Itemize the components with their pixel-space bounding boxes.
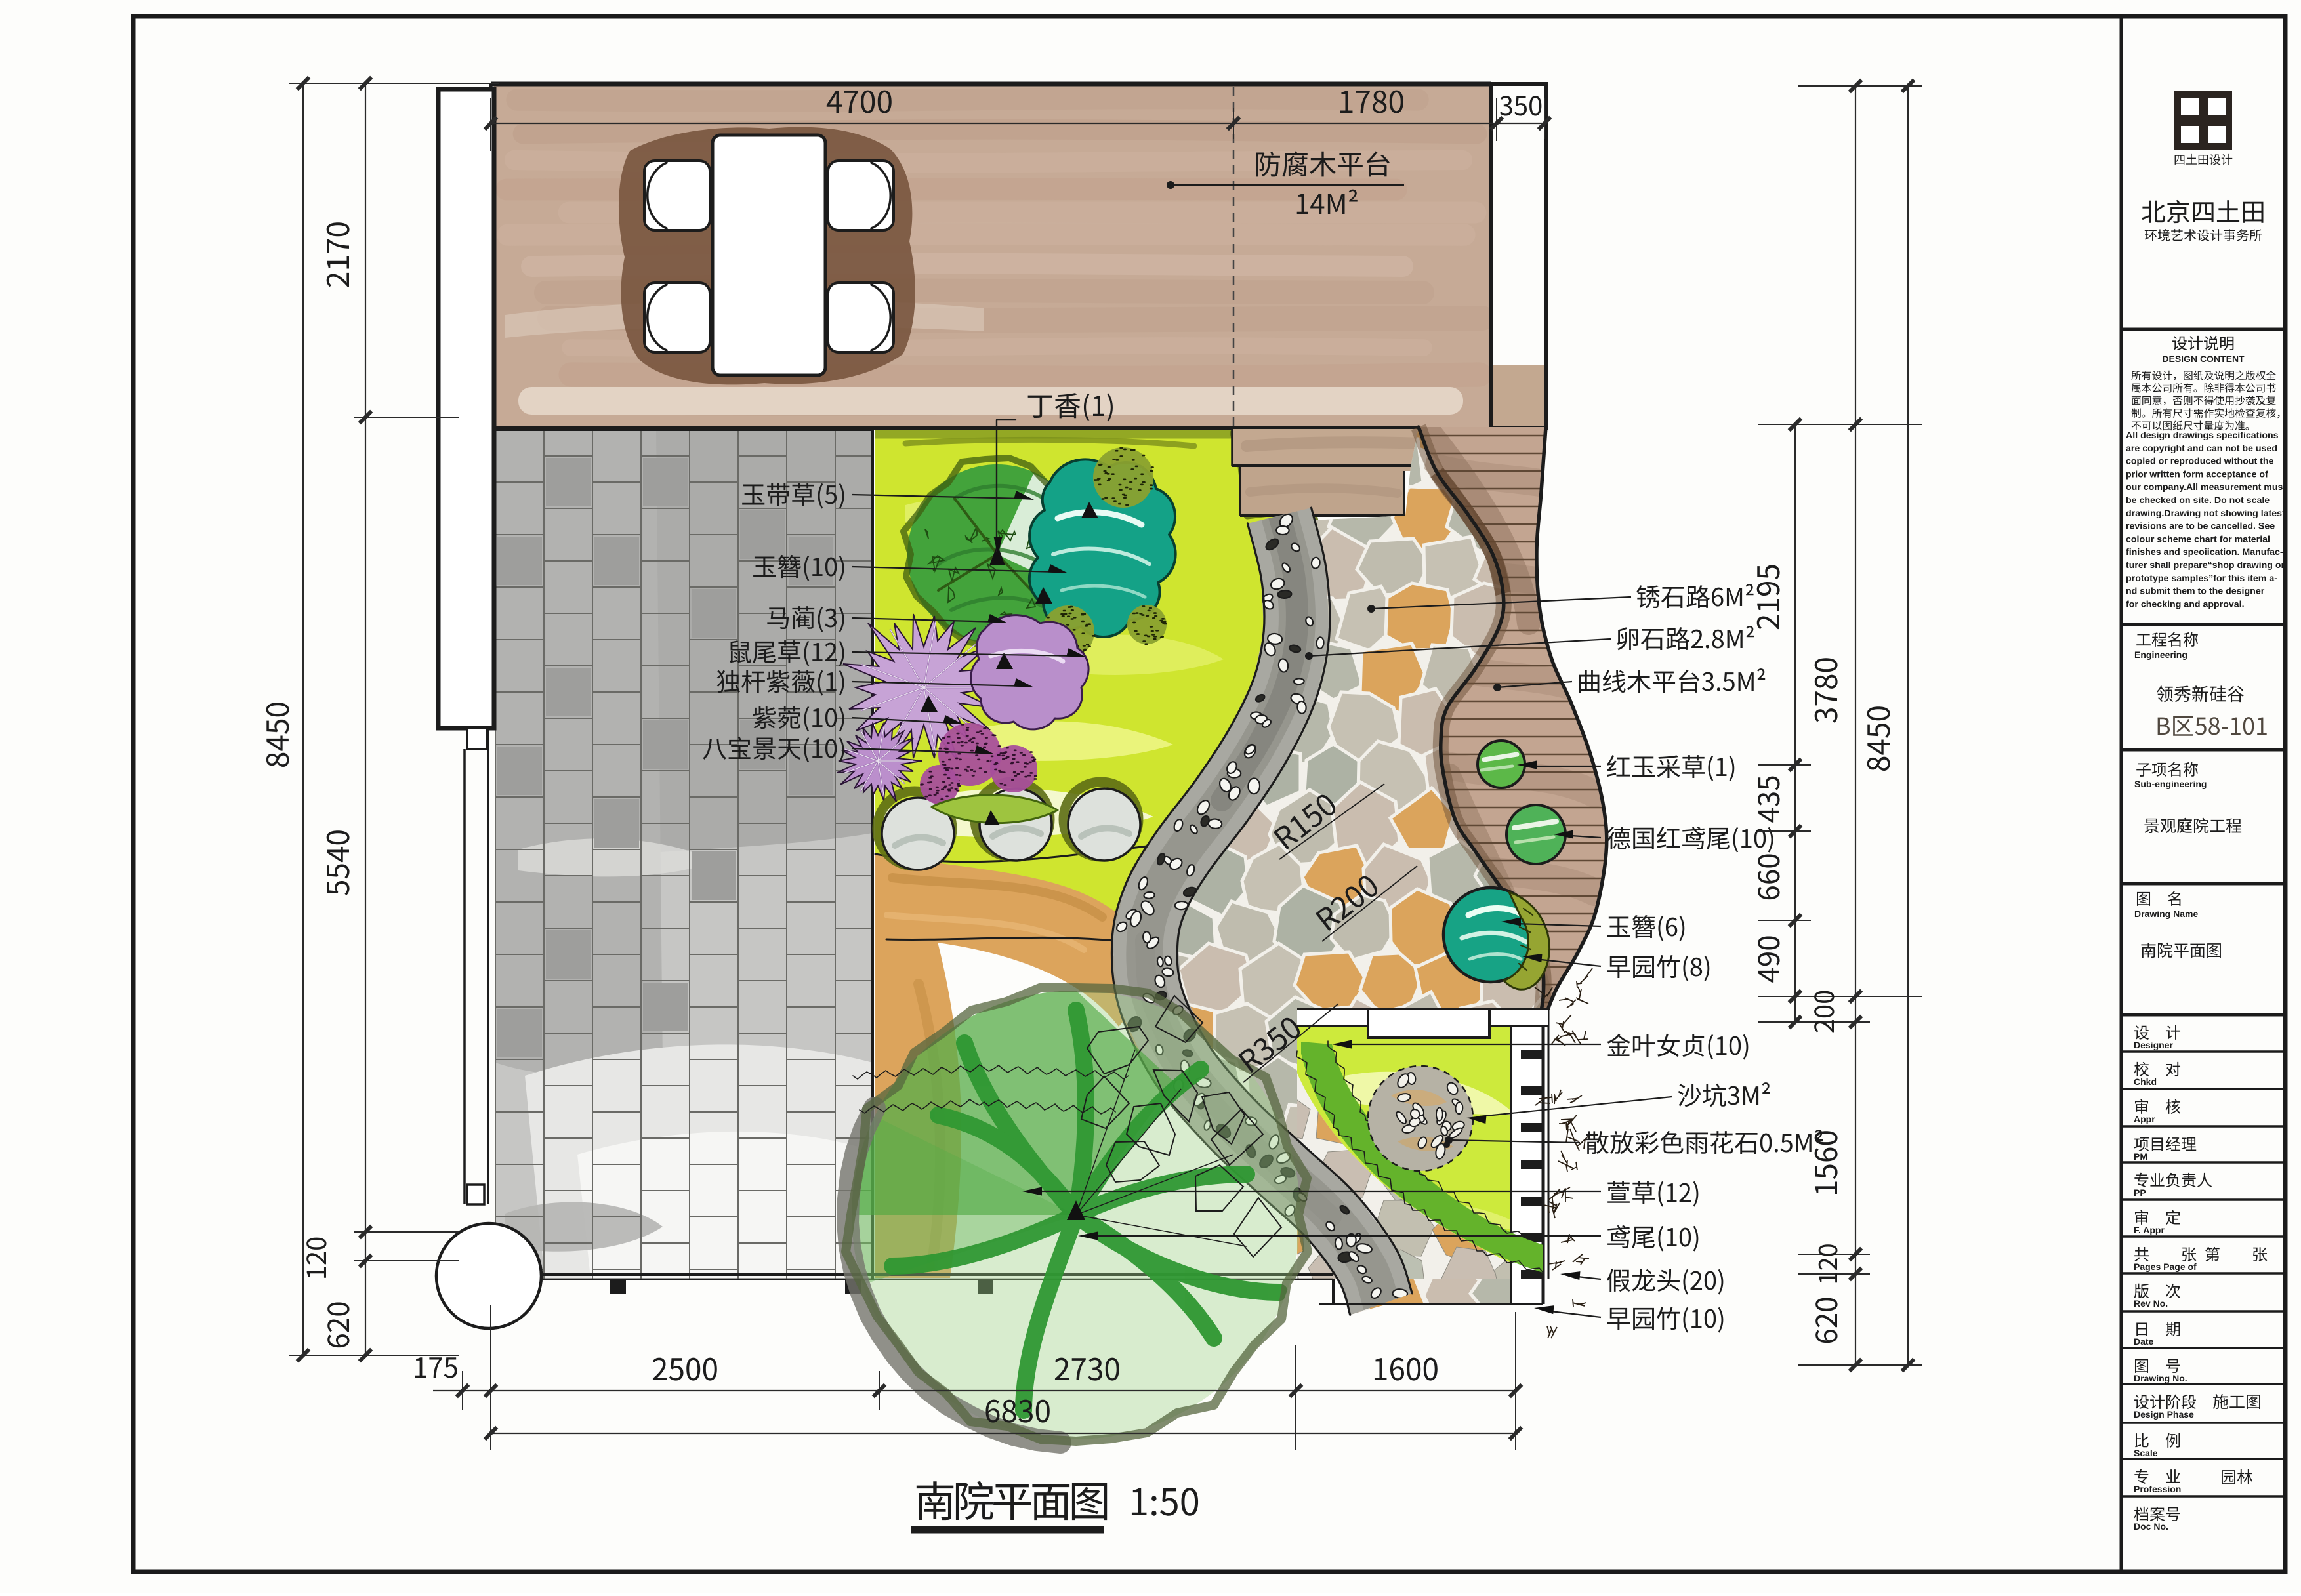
- svg-text:Chkd: Chkd: [2134, 1076, 2157, 1087]
- svg-text:finishes and speoiication. Man: finishes and speoiication. Manufac-: [2126, 547, 2283, 558]
- svg-text:are copyright and can not be u: are copyright and can not be used: [2126, 443, 2277, 454]
- svg-text:Rev No.: Rev No.: [2134, 1298, 2168, 1309]
- svg-text:Scale: Scale: [2134, 1448, 2158, 1458]
- svg-text:Sub-engineering: Sub-engineering: [2134, 779, 2207, 789]
- svg-text:Date: Date: [2134, 1336, 2154, 1347]
- svg-text:Engineering: Engineering: [2134, 649, 2187, 660]
- svg-text:our company.All measurement mu: our company.All measurement must: [2126, 482, 2286, 493]
- svg-text:Drawing Name: Drawing Name: [2134, 909, 2198, 919]
- svg-text:DESIGN CONTENT: DESIGN CONTENT: [2162, 354, 2245, 364]
- svg-text:Doc No.: Doc No.: [2134, 1521, 2168, 1532]
- svg-text:F. Appr: F. Appr: [2134, 1225, 2165, 1235]
- svg-text:Drawing No.: Drawing No.: [2134, 1373, 2187, 1383]
- svg-text:nd submit them to the designer: nd submit them to the designer: [2126, 586, 2265, 597]
- svg-text:for checking and approval.: for checking and approval.: [2126, 599, 2245, 609]
- svg-text:copied or reproduced without t: copied or reproduced without the: [2126, 457, 2274, 467]
- svg-text:All design drawings specificat: All design drawings specifications: [2126, 430, 2279, 441]
- svg-text:colour scheme chart for materi: colour scheme chart for material: [2126, 534, 2270, 544]
- svg-text:Profession: Profession: [2134, 1484, 2181, 1494]
- svg-text:Pages Page of: Pages Page of: [2134, 1261, 2197, 1272]
- svg-text:PP: PP: [2134, 1187, 2146, 1198]
- svg-text:Appr: Appr: [2134, 1114, 2155, 1124]
- svg-text:prototype samples”for this ite: prototype samples”for this item a-: [2126, 573, 2277, 584]
- svg-text:turer shall prepare“shop drawi: turer shall prepare“shop drawing or: [2126, 560, 2285, 571]
- svg-text:prior written form acceptance: prior written form acceptance of: [2126, 469, 2268, 480]
- svg-text:PM: PM: [2134, 1151, 2147, 1162]
- svg-text:revisions are to be cancelled.: revisions are to be cancelled. See: [2126, 522, 2275, 532]
- svg-text:Designer: Designer: [2134, 1040, 2173, 1050]
- svg-text:Design Phase: Design Phase: [2134, 1409, 2194, 1420]
- svg-text:be checked on site. Do not sca: be checked on site. Do not scale: [2126, 495, 2270, 506]
- svg-text:drawing.Drawing not showing la: drawing.Drawing not showing latest: [2126, 508, 2285, 519]
